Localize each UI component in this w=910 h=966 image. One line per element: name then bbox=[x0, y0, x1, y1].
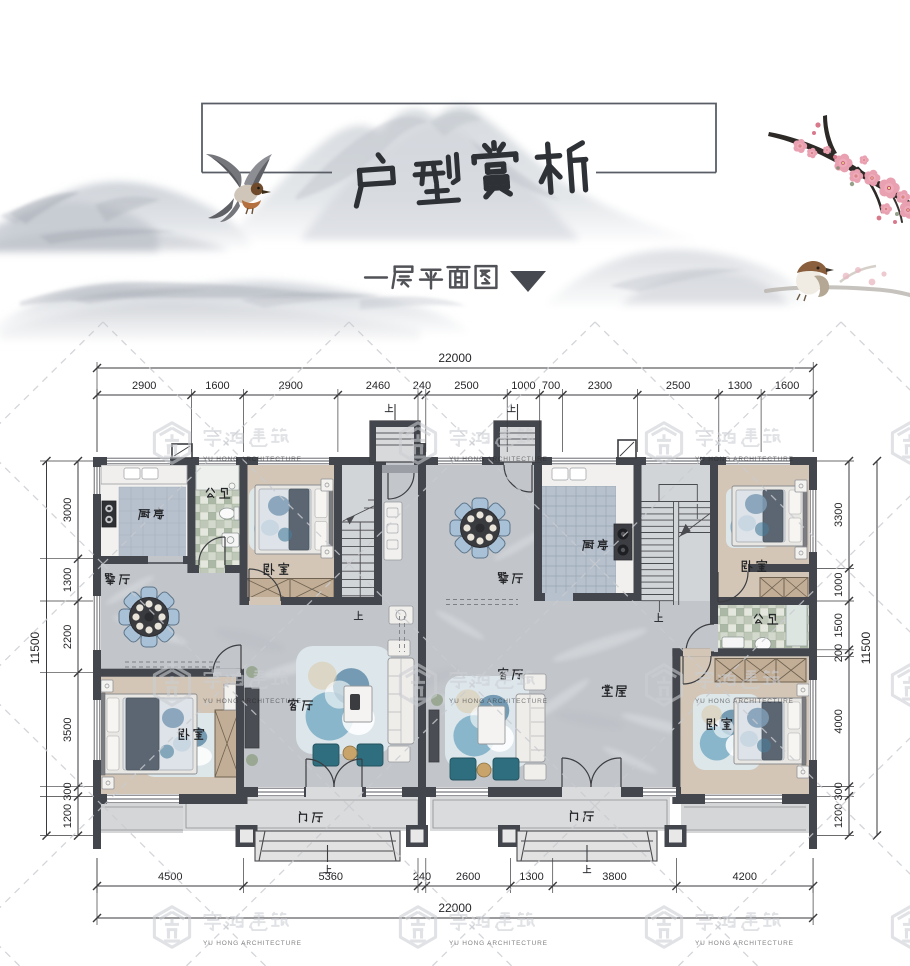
svg-text:11500: 11500 bbox=[28, 631, 42, 664]
svg-text:YU HONG ARCHITECTURE: YU HONG ARCHITECTURE bbox=[695, 456, 794, 463]
svg-text:1000: 1000 bbox=[511, 380, 535, 392]
svg-text:2300: 2300 bbox=[588, 380, 612, 392]
svg-text:1200: 1200 bbox=[62, 804, 74, 828]
svg-text:YU HONG ARCHITECTURE: YU HONG ARCHITECTURE bbox=[449, 456, 548, 463]
svg-text:3000: 3000 bbox=[62, 498, 74, 522]
svg-text:3800: 3800 bbox=[602, 871, 626, 883]
svg-text:2600: 2600 bbox=[456, 871, 480, 883]
svg-text:YU HONG ARCHITECTURE: YU HONG ARCHITECTURE bbox=[449, 698, 548, 705]
svg-text:2200: 2200 bbox=[62, 625, 74, 649]
svg-text:2500: 2500 bbox=[454, 380, 478, 392]
svg-text:3500: 3500 bbox=[62, 717, 74, 741]
svg-text:240: 240 bbox=[413, 380, 431, 392]
svg-text:22000: 22000 bbox=[438, 351, 472, 365]
svg-text:11500: 11500 bbox=[859, 631, 873, 664]
svg-text:YU HONG ARCHITECTURE: YU HONG ARCHITECTURE bbox=[695, 940, 794, 947]
svg-text:1300: 1300 bbox=[519, 871, 543, 883]
svg-text:300: 300 bbox=[833, 782, 845, 800]
svg-text:4000: 4000 bbox=[833, 709, 845, 733]
svg-text:1000: 1000 bbox=[833, 572, 845, 596]
svg-text:2460: 2460 bbox=[366, 380, 390, 392]
svg-text:200: 200 bbox=[833, 644, 845, 662]
svg-text:700: 700 bbox=[542, 380, 560, 392]
svg-text:YU HONG ARCHITECTURE: YU HONG ARCHITECTURE bbox=[449, 940, 548, 947]
svg-text:YU HONG ARCHITECTURE: YU HONG ARCHITECTURE bbox=[203, 456, 302, 463]
svg-text:3300: 3300 bbox=[833, 502, 845, 526]
svg-text:1300: 1300 bbox=[728, 380, 752, 392]
svg-text:1600: 1600 bbox=[775, 380, 799, 392]
svg-text:240: 240 bbox=[413, 871, 431, 883]
svg-text:YU HONG ARCHITECTURE: YU HONG ARCHITECTURE bbox=[695, 698, 794, 705]
svg-text:1300: 1300 bbox=[62, 568, 74, 592]
svg-text:5360: 5360 bbox=[319, 871, 343, 883]
svg-text:2500: 2500 bbox=[666, 380, 690, 392]
svg-text:1500: 1500 bbox=[833, 613, 845, 637]
svg-text:1600: 1600 bbox=[205, 380, 229, 392]
svg-text:YU HONG ARCHITECTURE: YU HONG ARCHITECTURE bbox=[203, 698, 302, 705]
svg-text:300: 300 bbox=[62, 782, 74, 800]
svg-text:4200: 4200 bbox=[733, 871, 757, 883]
svg-text:2900: 2900 bbox=[278, 380, 302, 392]
svg-text:2900: 2900 bbox=[132, 380, 156, 392]
svg-text:YU HONG ARCHITECTURE: YU HONG ARCHITECTURE bbox=[203, 940, 302, 947]
svg-text:22000: 22000 bbox=[438, 901, 472, 915]
